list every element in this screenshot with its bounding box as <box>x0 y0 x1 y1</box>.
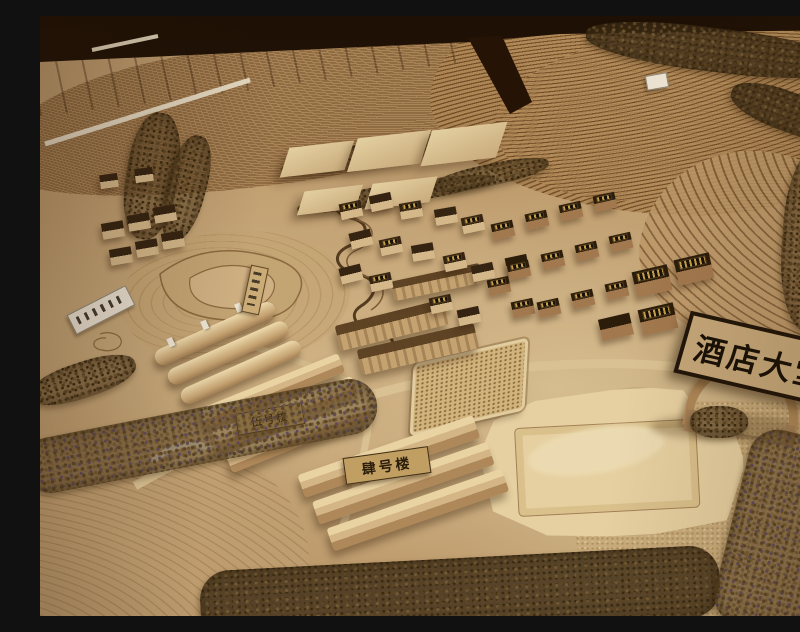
elevated-road-upper <box>92 36 158 50</box>
model-house <box>134 167 154 183</box>
model-house <box>99 173 119 189</box>
illegible-text <box>247 271 262 306</box>
tree-clump-gate <box>690 406 748 438</box>
spiral-contour <box>94 333 122 351</box>
model-photo: Photograph of a wooden architectural sca… <box>40 16 800 616</box>
